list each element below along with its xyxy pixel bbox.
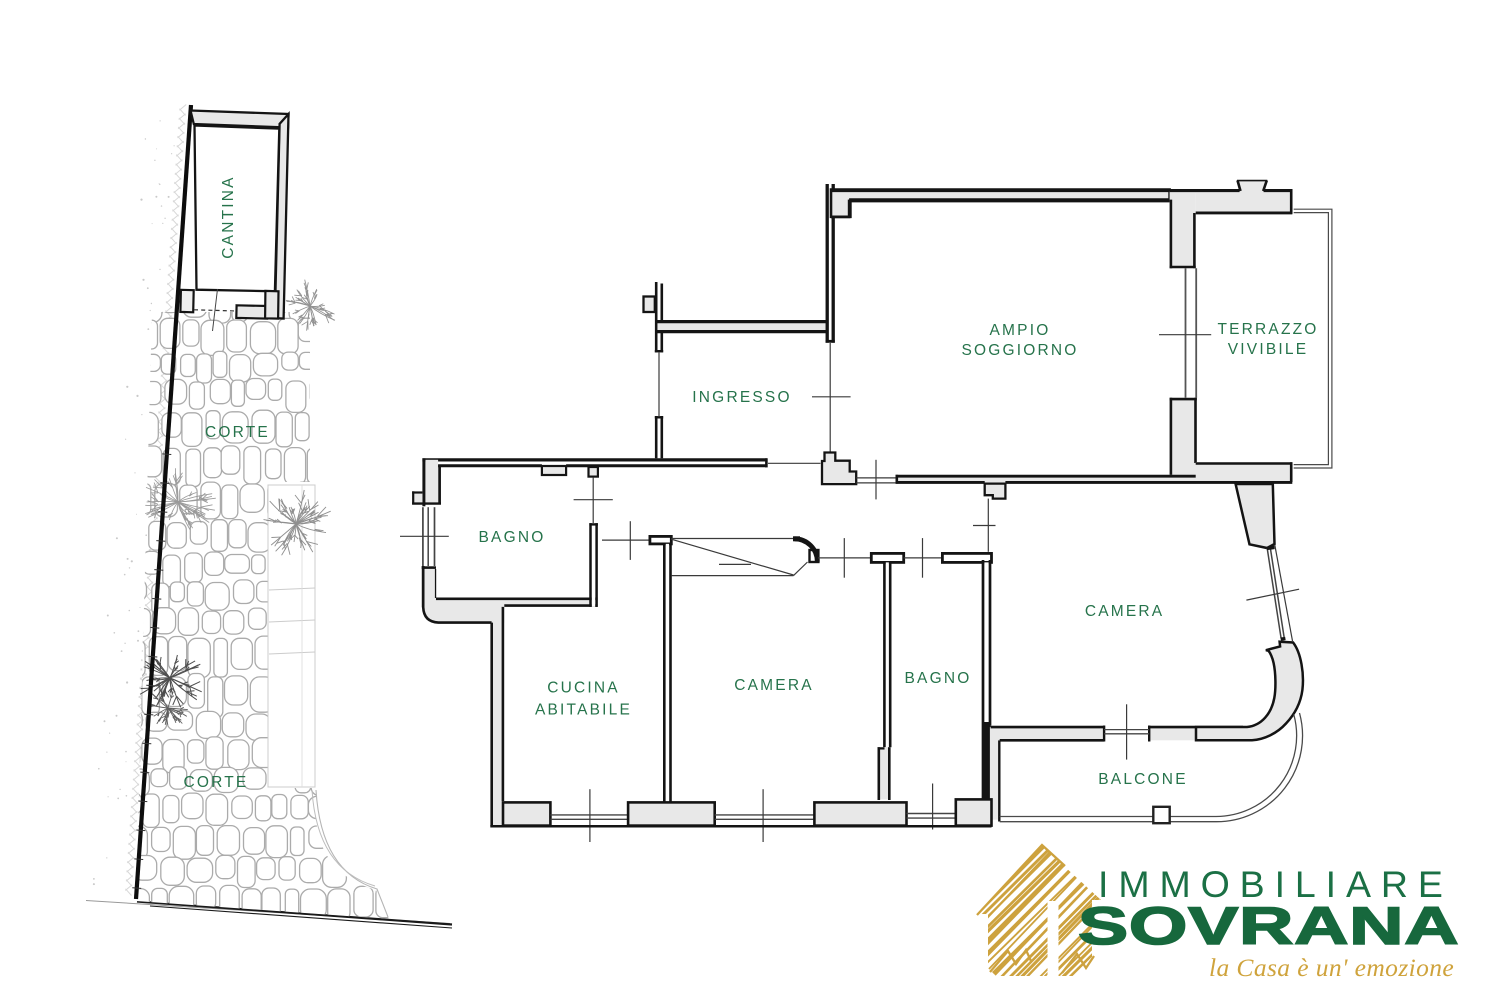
svg-text:TERRAZZO: TERRAZZO bbox=[1217, 321, 1318, 338]
svg-text:SOVRANA: SOVRANA bbox=[1078, 896, 1459, 955]
svg-text:BALCONE: BALCONE bbox=[1098, 771, 1187, 788]
svg-text:BAGNO: BAGNO bbox=[905, 670, 972, 687]
svg-text:CAMERA: CAMERA bbox=[1085, 603, 1165, 620]
svg-text:VIVIBILE: VIVIBILE bbox=[1228, 341, 1309, 358]
svg-text:CAMERA: CAMERA bbox=[734, 677, 814, 694]
svg-text:INGRESSO: INGRESSO bbox=[692, 389, 791, 406]
svg-text:SOGGIORNO: SOGGIORNO bbox=[961, 342, 1078, 359]
svg-text:CANTINA: CANTINA bbox=[220, 175, 237, 258]
svg-text:la Casa è un' emozione: la Casa è un' emozione bbox=[1209, 953, 1454, 982]
svg-text:ABITABILE: ABITABILE bbox=[535, 702, 632, 719]
svg-text:AMPIO: AMPIO bbox=[990, 322, 1051, 339]
svg-text:CORTE: CORTE bbox=[205, 424, 270, 441]
svg-text:CUCINA: CUCINA bbox=[547, 680, 620, 697]
svg-text:CORTE: CORTE bbox=[184, 774, 249, 791]
svg-text:BAGNO: BAGNO bbox=[479, 529, 546, 546]
